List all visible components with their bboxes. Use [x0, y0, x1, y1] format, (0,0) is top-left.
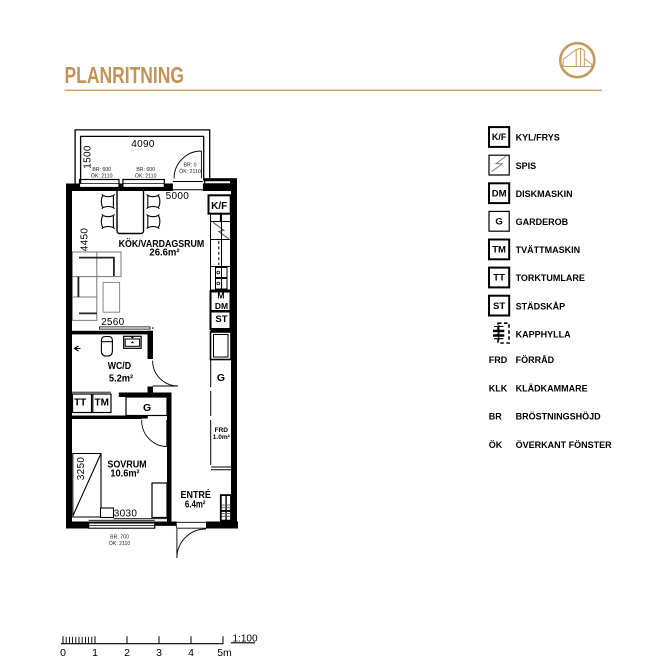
svg-text:4450: 4450 — [79, 228, 90, 252]
svg-text:TVÄTTMASKIN: TVÄTTMASKIN — [516, 245, 581, 255]
svg-text:TM: TM — [94, 398, 108, 409]
svg-text:ÖK: 2110: ÖK: 2110 — [135, 172, 157, 179]
svg-text:KAPPHYLLA: KAPPHYLLA — [516, 329, 572, 339]
svg-text:26.6m²: 26.6m² — [149, 247, 180, 258]
svg-text:2: 2 — [124, 647, 130, 659]
svg-text:1.0m²: 1.0m² — [213, 434, 231, 441]
svg-text:KYL/FRYS: KYL/FRYS — [516, 133, 560, 143]
svg-text:BR: 0: BR: 0 — [184, 163, 197, 169]
svg-text:1: 1 — [92, 647, 98, 659]
svg-text:TT: TT — [493, 273, 505, 284]
svg-text:DM: DM — [492, 188, 507, 199]
svg-text:2560: 2560 — [101, 317, 125, 328]
svg-text:M: M — [217, 290, 224, 300]
svg-text:DM: DM — [215, 301, 228, 311]
svg-text:3250: 3250 — [76, 457, 87, 481]
svg-text:KLK: KLK — [489, 383, 508, 393]
svg-text:TT: TT — [74, 398, 86, 409]
svg-text:DISKMASKIN: DISKMASKIN — [516, 189, 573, 199]
svg-text:FÖRRÅD: FÖRRÅD — [516, 355, 555, 365]
svg-text:5000: 5000 — [166, 191, 190, 202]
svg-text:ÖK: 2110: ÖK: 2110 — [109, 540, 131, 547]
svg-text:6.4m²: 6.4m² — [185, 500, 206, 511]
svg-text:0: 0 — [60, 647, 66, 659]
svg-text:BR: 600: BR: 600 — [136, 167, 155, 173]
svg-text:4090: 4090 — [131, 139, 155, 150]
svg-text:ST: ST — [493, 301, 505, 312]
svg-text:G: G — [143, 402, 151, 414]
svg-text:BR: 600: BR: 600 — [92, 167, 111, 173]
svg-text:3: 3 — [156, 647, 162, 659]
svg-text:ST: ST — [215, 314, 227, 325]
svg-text:FRD: FRD — [215, 427, 229, 434]
svg-text:STÄDSKÅP: STÄDSKÅP — [516, 301, 566, 311]
svg-text:K/F: K/F — [211, 201, 227, 212]
svg-text:SPIS: SPIS — [516, 161, 537, 171]
svg-text:1500: 1500 — [83, 145, 94, 169]
svg-text:G: G — [495, 217, 502, 228]
svg-text:ÖK: 2110: ÖK: 2110 — [179, 168, 201, 175]
svg-text:KLÄDKAMMARE: KLÄDKAMMARE — [516, 383, 588, 393]
svg-text:G: G — [217, 372, 225, 384]
svg-text:TORKTUMLARE: TORKTUMLARE — [516, 273, 585, 283]
svg-text:5.2m²: 5.2m² — [109, 373, 134, 384]
svg-text:3030: 3030 — [114, 509, 138, 520]
svg-text:BRÖSTNINGSHÖJD: BRÖSTNINGSHÖJD — [516, 412, 602, 422]
svg-text:PLANRITNING: PLANRITNING — [65, 62, 185, 88]
svg-text:BR: BR — [489, 412, 502, 422]
svg-text:GARDEROB: GARDEROB — [516, 217, 569, 227]
svg-text:BR: 700: BR: 700 — [110, 535, 129, 541]
svg-text:4: 4 — [188, 647, 194, 659]
svg-text:ÖK: ÖK — [489, 440, 503, 450]
svg-text:WC/D: WC/D — [108, 361, 131, 372]
svg-text:FRD: FRD — [489, 355, 508, 365]
svg-text:1:100: 1:100 — [233, 633, 258, 644]
svg-text:ÖVERKANT FÖNSTER: ÖVERKANT FÖNSTER — [516, 440, 613, 450]
svg-text:ÖK: 2110: ÖK: 2110 — [91, 172, 113, 179]
svg-text:TM: TM — [492, 245, 506, 256]
svg-text:K/F: K/F — [492, 132, 507, 143]
svg-text:5m: 5m — [217, 647, 232, 659]
svg-text:10.6m²: 10.6m² — [110, 469, 140, 480]
